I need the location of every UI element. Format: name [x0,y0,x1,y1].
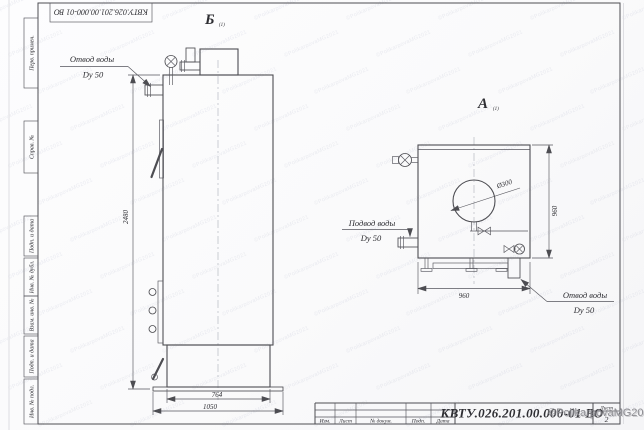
boiler-plinth [167,345,270,387]
title-col-list: Лист [338,419,352,425]
outlet-label-line2: Dy 50 [82,70,104,80]
dim-text-2480: 2480 [122,210,130,225]
dim-text-960-height: 960 [551,205,559,216]
title-col-izm: Изм. [319,419,331,425]
front-safety-valve-icon [393,154,419,167]
stamp-label-perv-primen: Перв. примен. [30,35,36,72]
front-view: А (1) Ø300 [342,96,614,315]
dim-text-diameter: Ø300 [495,178,514,191]
dim-diameter-300: Ø300 [451,178,520,211]
inlet-pipe-stub [398,236,418,249]
safety-valve-icon [165,56,177,86]
internal-pipe-valve [470,222,528,235]
tank-base-frame [421,258,508,271]
doc-number-rotated: КВТУ.026.201.00.000-01 ВО [54,8,149,17]
drain-valve-assembly [504,244,525,278]
drawing-canvas: КВТУ.026.201.00.000-01 ВО Перв. примен. … [0,0,644,430]
stamp-label-sprav-n: Справ. № [30,135,36,160]
drawing-sheet: ©PolikarpovaMG2021©PolikarpovaMG2021©Pol… [0,0,644,430]
inlet-water-callout: Подвод воды Dy 50 [342,218,410,243]
stamp-label-inv-podl: Инв. № подл. [29,385,36,419]
upper-door-handle [152,120,164,178]
sheet-frame: КВТУ.026.201.00.000-01 ВО [9,0,624,430]
inlet-label-line2: Dy 50 [360,233,382,243]
stamp-label-inv-dubl: Инв. № дубл. [29,261,36,295]
front-outlet-label-line2: Dy 50 [573,305,595,315]
margin-stamp-column: Перв. примен. Справ. № Подп. и дата Инв.… [24,18,38,424]
outlet-label-line1: Отвод воды [70,54,114,64]
view-label-a: А [477,96,488,112]
view-label-b: Б [204,12,215,28]
inlet-label-line1: Подвод воды [348,218,396,228]
stamp-label-podp-data-2: Подп. и дата [29,339,36,374]
watermark-signature: ©PolikarpovaMG2021 [548,407,644,419]
lower-door-hinges [149,281,163,380]
dim-text-1050: 1050 [203,403,218,411]
stamp-label-podp-data-1: Подп. и дата [29,219,36,254]
side-view: Б (1) [60,12,283,415]
outlet-water-callout: Отвод воды Dy 50 [60,54,151,87]
title-col-dokum: № докум. [369,418,392,425]
title-col-podp: Подп. [411,418,426,425]
view-label-a-note: (1) [493,107,499,112]
view-label-b-note: (1) [219,23,225,28]
front-outlet-label-line1: Отвод воды [563,290,607,300]
dim-text-764: 764 [212,391,223,399]
stamp-label-vzam-inv: Взам. инв. № [30,298,36,331]
dim-text-960-width: 960 [459,292,470,300]
front-outlet-callout: Отвод воды Dy 50 [521,280,614,316]
dim-height-960: 960 [532,145,559,258]
chimney-assembly [180,48,238,75]
outlet-pipe-stub [145,83,163,97]
dim-height-2480: 2480 [122,75,160,389]
